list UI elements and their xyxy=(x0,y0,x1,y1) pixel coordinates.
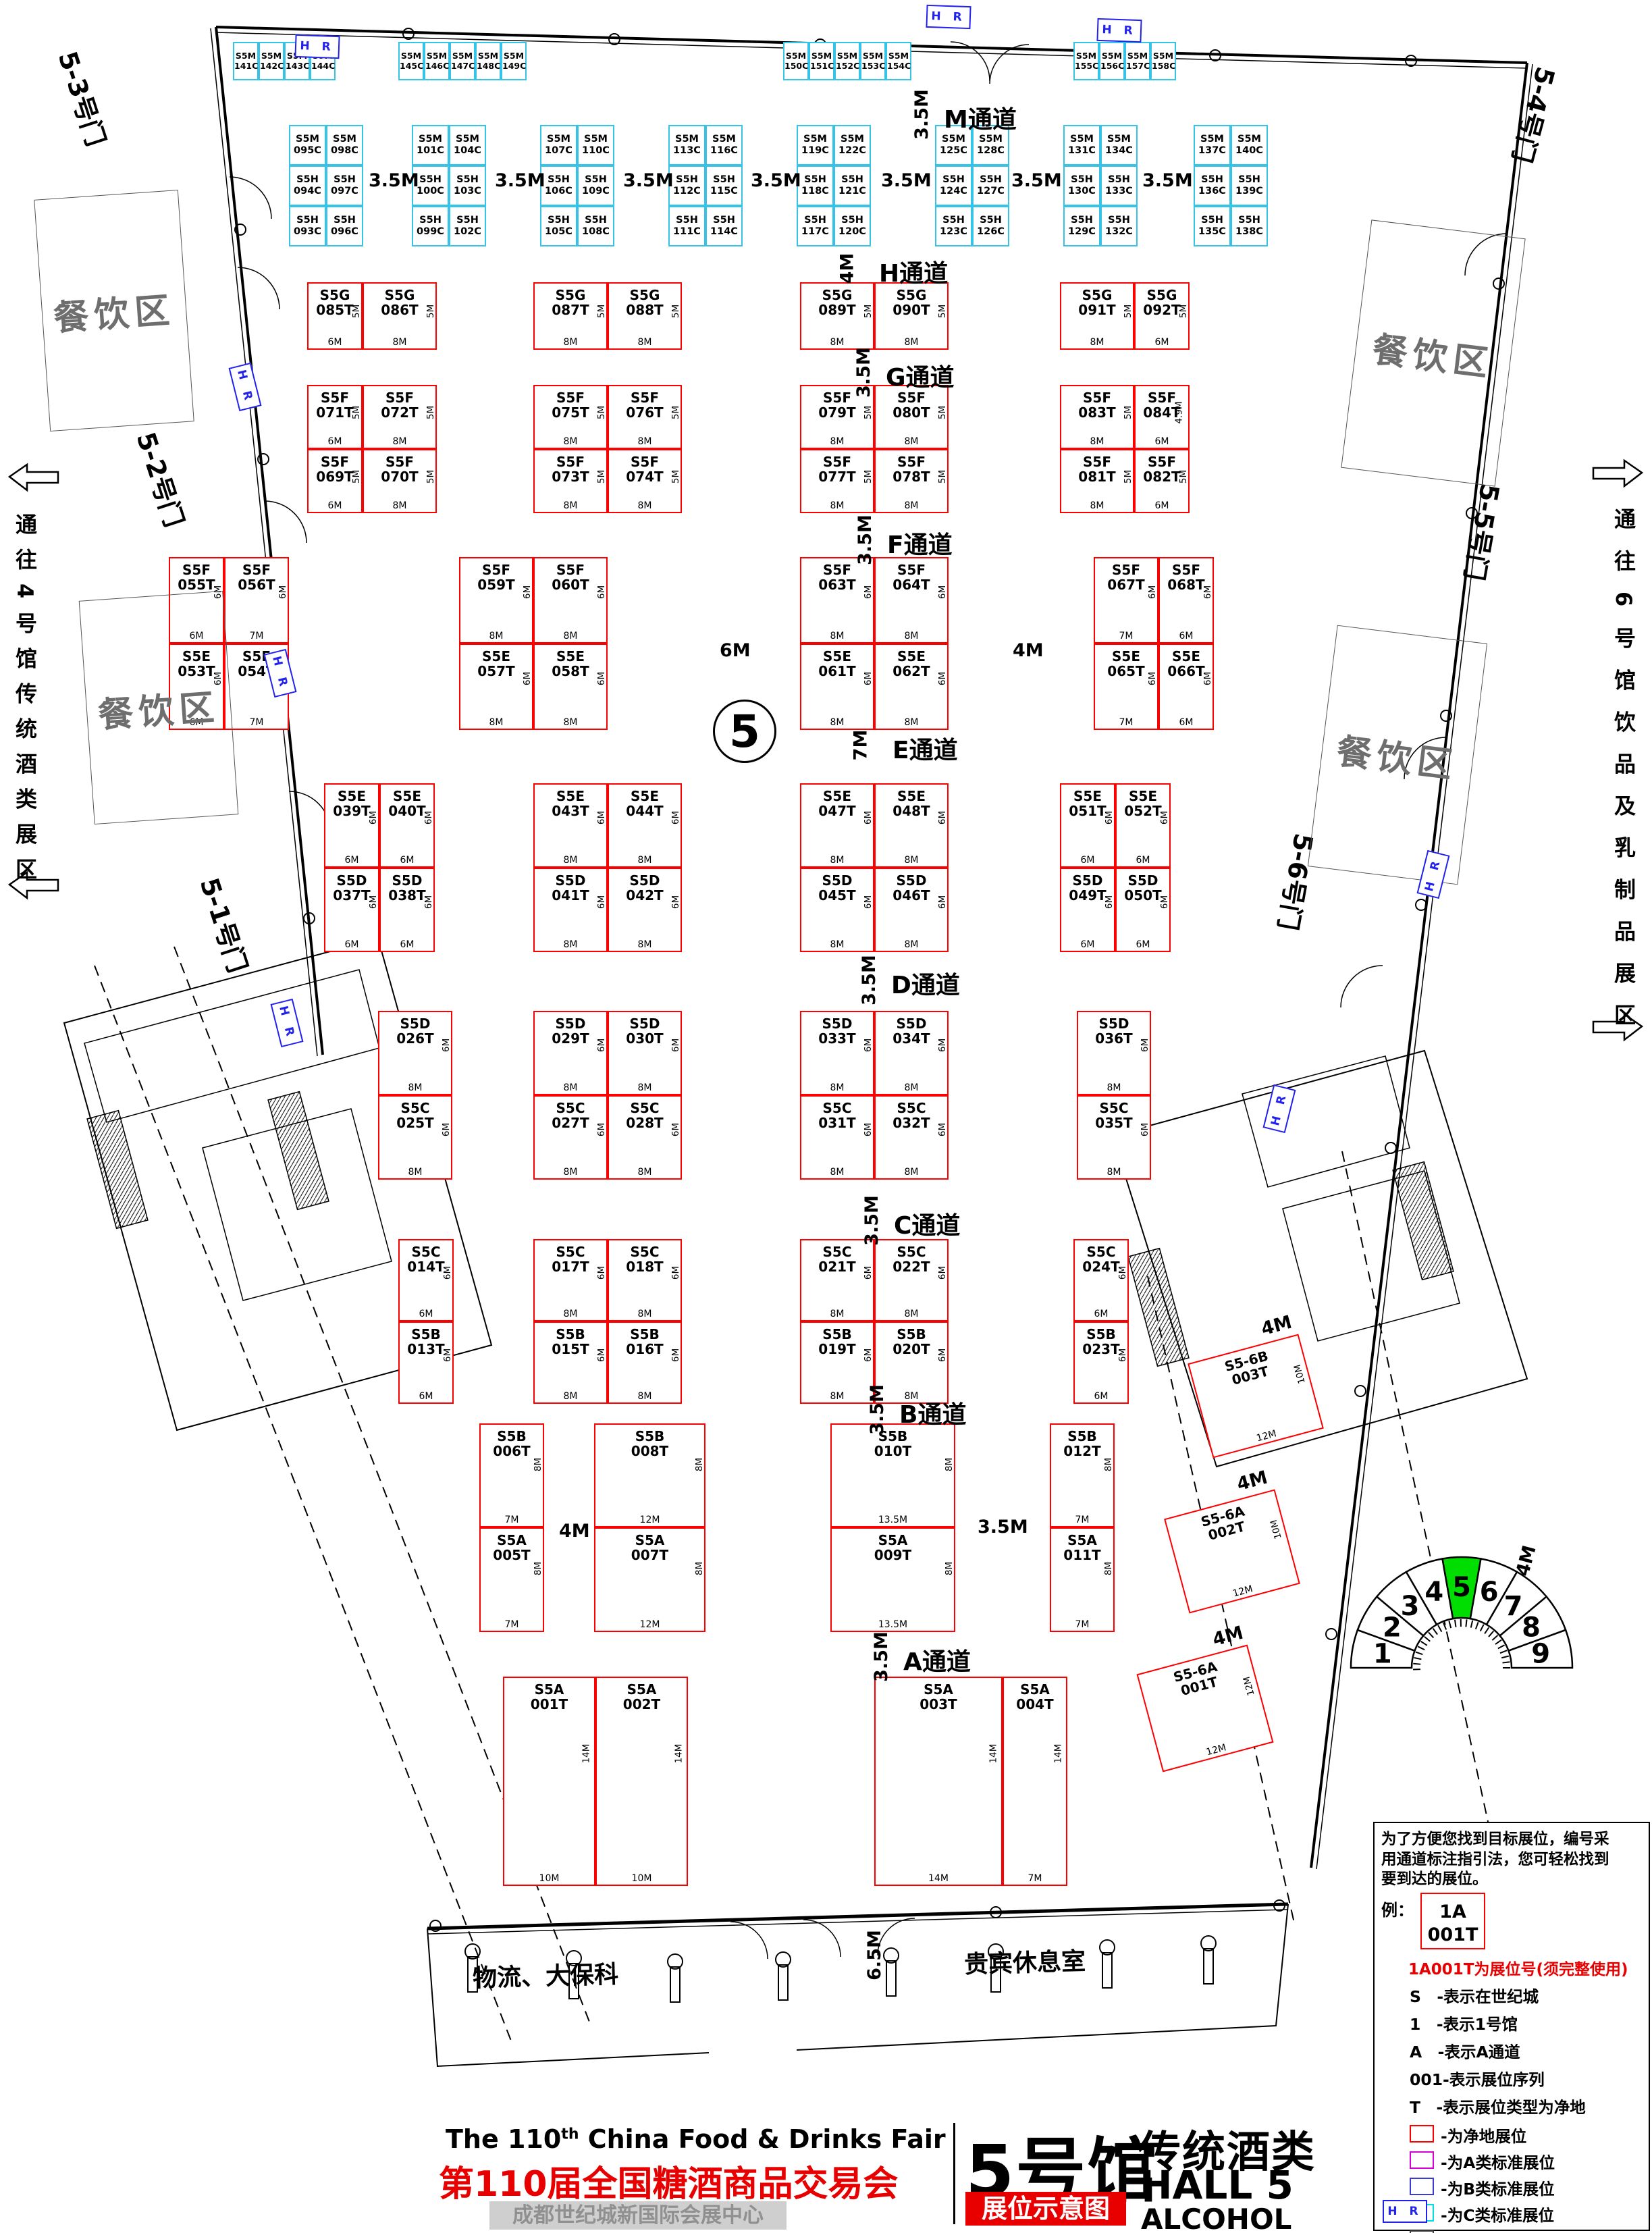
booth-width-label: 7M xyxy=(481,1515,543,1525)
booth-depth-label: 6M xyxy=(596,1123,607,1136)
booth-S5F-067T[interactable]: S5F067T7M6M xyxy=(1094,557,1158,643)
booth-S5E-048T[interactable]: S5E048T8M6M xyxy=(874,783,949,868)
booth-width-label: 8M xyxy=(1061,337,1133,348)
booth-id: S5H129C xyxy=(1065,207,1099,245)
booth-depth-label: 6M xyxy=(596,895,607,909)
booth-S5F-075T[interactable]: S5F075T8M5M xyxy=(533,385,608,449)
legend-code-line: 1 -表示1号馆 xyxy=(1410,2012,1649,2034)
booth-S5D-050T[interactable]: S5D050T6M6M xyxy=(1115,868,1171,952)
booth-S5F-073T[interactable]: S5F073T8M5M xyxy=(533,449,608,513)
booth-S5M-095C[interactable]: S5M095C xyxy=(289,125,326,165)
booth-width-label: 8M xyxy=(609,855,681,866)
booth-depth-label: 5M xyxy=(937,305,948,318)
booth-S5H-124C[interactable]: S5H124C xyxy=(935,165,972,206)
booth-depth-label: 5M xyxy=(937,406,948,419)
booth-S5M-149C[interactable]: S5M149C xyxy=(501,42,527,80)
aisle-label-F通道: F通道 xyxy=(887,525,953,560)
booth-S5M-153C[interactable]: S5M153C xyxy=(860,42,886,80)
booth-width-label: 8M xyxy=(876,717,947,728)
booth-S5M-113C[interactable]: S5M113C xyxy=(668,125,705,165)
booth-S5M-150C[interactable]: S5M150C xyxy=(783,42,809,80)
booth-S5M-137C[interactable]: S5M137C xyxy=(1194,125,1231,165)
booth-S5A-005T[interactable]: S5A005T7M8M xyxy=(479,1527,544,1632)
booth-S5H-133C[interactable]: S5H133C xyxy=(1100,165,1138,206)
booth-S5M-154C[interactable]: S5M154C xyxy=(886,42,911,80)
booth-id: S5H139C xyxy=(1232,167,1267,205)
booth-id: S5M107C xyxy=(541,126,576,164)
booth-depth-label: 6M xyxy=(368,895,379,909)
booth-S5E-065T[interactable]: S5E065T7M6M xyxy=(1094,643,1158,730)
booth-S5M-098C[interactable]: S5M098C xyxy=(326,125,363,165)
booth-S5F-084T[interactable]: S5F084T6M4.9M xyxy=(1134,385,1190,449)
booth-S5E-047T[interactable]: S5E047T8M6M xyxy=(800,783,874,868)
hall-number-circle: 5 xyxy=(713,700,776,763)
booth-depth-label: 8M xyxy=(944,1562,955,1575)
booth-S5D-034T[interactable]: S5D034T8M6M xyxy=(874,1011,949,1095)
booth-S5C-028T[interactable]: S5C028T8M6M xyxy=(608,1095,682,1180)
booth-S5E-039T[interactable]: S5E039T6M6M xyxy=(324,783,379,868)
booth-S5F-068T[interactable]: S5F068T6M6M xyxy=(1158,557,1214,643)
booth-S5H-135C[interactable]: S5H135C xyxy=(1194,206,1231,246)
booth-id: S5D030T xyxy=(609,1017,681,1046)
booth-S5H-118C[interactable]: S5H118C xyxy=(797,165,834,206)
booth-id: S5A003T xyxy=(876,1683,1001,1712)
booth-S5F-063T[interactable]: S5F063T8M6M xyxy=(800,557,874,643)
booth-id: S5G091T xyxy=(1061,288,1133,317)
booth-S5G-089T[interactable]: S5G089T8M5M xyxy=(800,282,874,350)
booth-S5H-120C[interactable]: S5H120C xyxy=(834,206,871,246)
booth-S5M-110C[interactable]: S5M110C xyxy=(577,125,614,165)
booth-width-label: 14M xyxy=(876,1873,1001,1884)
booth-S5H-097C[interactable]: S5H097C xyxy=(326,165,363,206)
booth-S5F-064T[interactable]: S5F064T8M6M xyxy=(874,557,949,643)
booth-id: S5H099C xyxy=(413,207,448,245)
booth-S5F-076T[interactable]: S5F076T8M5M xyxy=(608,385,682,449)
booth-S5M-134C[interactable]: S5M134C xyxy=(1100,125,1138,165)
booth-S5M-116C[interactable]: S5M116C xyxy=(705,125,743,165)
hr-hydrant-icon: H R xyxy=(1096,18,1142,43)
booth-id: S5M158C xyxy=(1152,43,1175,79)
booth-S5E-051T[interactable]: S5E051T6M6M xyxy=(1060,783,1115,868)
booth-S5D-042T[interactable]: S5D042T8M6M xyxy=(608,868,682,952)
booth-S5M-131C[interactable]: S5M131C xyxy=(1063,125,1100,165)
booth-id: S5B012T xyxy=(1051,1429,1113,1459)
booth-width-label: 8M xyxy=(876,855,947,866)
booth-id: S5H109C xyxy=(579,167,613,205)
booth-S5M-147C[interactable]: S5M147C xyxy=(450,42,475,80)
booth-S5H-117C[interactable]: S5H117C xyxy=(797,206,834,246)
booth-S5C-032T[interactable]: S5C032T8M6M xyxy=(874,1095,949,1180)
booth-depth-label: 6M xyxy=(1159,895,1170,909)
booth-S5H-103C[interactable]: S5H103C xyxy=(449,165,486,206)
booth-id: S5M101C xyxy=(413,126,448,164)
legend-sample-booth: 1A001T xyxy=(1420,1893,1485,1949)
booth-id: S5H118C xyxy=(798,167,832,205)
booth-S5H-111C[interactable]: S5H111C xyxy=(668,206,705,246)
booth-width-label: 6M xyxy=(400,1391,452,1402)
booth-S5F-083T[interactable]: S5F083T8M5M xyxy=(1060,385,1134,449)
booth-S5H-123C[interactable]: S5H123C xyxy=(935,206,972,246)
booth-S5G-090T[interactable]: S5G090T8M5M xyxy=(874,282,949,350)
booth-depth-label: 8M xyxy=(533,1458,543,1471)
booth-id: S5C027T xyxy=(535,1101,606,1130)
booth-S5D-038T[interactable]: S5D038T6M6M xyxy=(379,868,435,952)
booth-S5F-078T[interactable]: S5F078T8M5M xyxy=(874,449,949,513)
booth-S5G-085T[interactable]: S5G085T6M5M xyxy=(307,282,363,350)
booth-width-label: 8M xyxy=(535,717,606,728)
booth-width-label: 8M xyxy=(801,631,873,641)
booth-S5A-004T[interactable]: S5A004T7M14M xyxy=(1003,1677,1067,1886)
booth-S5D-049T[interactable]: S5D049T6M6M xyxy=(1060,868,1115,952)
booth-S5D-033T[interactable]: S5D033T8M6M xyxy=(800,1011,874,1095)
booth-id: S5M119C xyxy=(798,126,832,164)
booth-S5H-105C[interactable]: S5H105C xyxy=(540,206,577,246)
booth-width-label: 8M xyxy=(1078,1167,1150,1178)
booth-depth-label: 6M xyxy=(670,811,681,824)
booth-depth-label: 5M xyxy=(670,470,681,483)
booth-S5G-086T[interactable]: S5G086T8M5M xyxy=(363,282,437,350)
booth-width-label: 8M xyxy=(379,1167,451,1178)
booth-S5H-138C[interactable]: S5H138C xyxy=(1231,206,1268,246)
booth-S5H-121C[interactable]: S5H121C xyxy=(834,165,871,206)
booth-id: S5C031T xyxy=(801,1101,873,1130)
booth-width-label: 7M xyxy=(1004,1873,1066,1884)
booth-depth-label: 6M xyxy=(596,585,607,599)
booth-width-label: 7M xyxy=(1051,1619,1113,1630)
booth-id: S5M153C xyxy=(861,43,884,79)
booth-width-label: 7M xyxy=(481,1619,543,1630)
legend-code-line: A -表示A通道 xyxy=(1410,2039,1649,2062)
booth-S5F-070T[interactable]: S5F070T8M5M xyxy=(363,449,437,513)
booth-S5H-096C[interactable]: S5H096C xyxy=(326,206,363,246)
booth-S5A-009T[interactable]: S5A009T13.5M8M xyxy=(830,1527,955,1632)
booth-id: S5H103C xyxy=(450,167,485,205)
booth-S5M-107C[interactable]: S5M107C xyxy=(540,125,577,165)
booth-S5C-024T[interactable]: S5C024T6M6M xyxy=(1073,1239,1129,1321)
booth-S5D-041T[interactable]: S5D041T8M6M xyxy=(533,868,608,952)
booth-S5E-066T[interactable]: S5E066T6M6M xyxy=(1158,643,1214,730)
booth-width-label: 8M xyxy=(609,500,681,511)
booth-S5M-156C[interactable]: S5M156C xyxy=(1099,42,1125,80)
booth-S5M-141C[interactable]: S5M141C xyxy=(233,42,259,80)
booth-S5F-080T[interactable]: S5F080T8M5M xyxy=(874,385,949,449)
booth-S5C-021T[interactable]: S5C021T8M6M xyxy=(800,1239,874,1321)
booth-id: S5M141C xyxy=(234,43,257,79)
booth-S5C-018T[interactable]: S5C018T8M6M xyxy=(608,1239,682,1321)
booth-width-label: 8M xyxy=(535,500,606,511)
booth-S5H-112C[interactable]: S5H112C xyxy=(668,165,705,206)
booth-id: S5F072T xyxy=(364,391,435,420)
booth-width-label: 10M xyxy=(597,1873,687,1884)
booth-depth-label: 6M xyxy=(1104,895,1115,909)
booth-S5M-142C[interactable]: S5M142C xyxy=(259,42,284,80)
booth-S5G-088T[interactable]: S5G088T8M5M xyxy=(608,282,682,350)
booth-S5H-126C[interactable]: S5H126C xyxy=(972,206,1009,246)
booth-id: S5D042T xyxy=(609,874,681,903)
gap-dimension-label: 4M xyxy=(559,1521,590,1542)
booth-S5E-052T[interactable]: S5E052T6M6M xyxy=(1115,783,1171,868)
booth-S5M-155C[interactable]: S5M155C xyxy=(1073,42,1099,80)
booth-id: S5A007T xyxy=(595,1533,704,1562)
legend-type-label: -为C类标准展位 xyxy=(1441,2203,1554,2226)
title-block: The 110th China Food & Drinks Fair 第110届… xyxy=(425,2119,1323,2230)
booth-depth-label: 14M xyxy=(988,1744,999,1764)
booth-S5H-109C[interactable]: S5H109C xyxy=(577,165,614,206)
booth-S5M-148C[interactable]: S5M148C xyxy=(475,42,501,80)
booth-S5F-056T[interactable]: S5F056T7M6M xyxy=(224,557,289,643)
booth-id: S5M155C xyxy=(1075,43,1098,79)
booth-width-label: 8M xyxy=(535,1391,606,1402)
booth-depth-label: 6M xyxy=(937,1123,948,1136)
booth-S5H-106C[interactable]: S5H106C xyxy=(540,165,577,206)
booth-S5B-019T[interactable]: S5B019T8M6M xyxy=(800,1321,874,1404)
booth-depth-label: 14M xyxy=(674,1744,685,1764)
booth-id: S5H136C xyxy=(1195,167,1229,205)
booth-id: S5H093C xyxy=(290,207,325,245)
booth-depth-label: 6M xyxy=(441,1039,452,1052)
booth-depth-label: 6M xyxy=(863,811,874,824)
booth-S5A-007T[interactable]: S5A007T12M8M xyxy=(594,1527,705,1632)
booth-S5A-011T[interactable]: S5A011T7M8M xyxy=(1050,1527,1115,1632)
booth-id: S5E057T xyxy=(460,650,532,679)
booth-id: S5E044T xyxy=(609,789,681,818)
booth-S5B-015T[interactable]: S5B015T8M6M xyxy=(533,1321,608,1404)
booth-id: S5B006T xyxy=(481,1429,543,1459)
booth-depth-label: 6M xyxy=(937,672,948,685)
booth-depth-label: 6M xyxy=(937,895,948,909)
booth-S5M-122C[interactable]: S5M122C xyxy=(834,125,871,165)
booth-depth-label: 6M xyxy=(863,1039,874,1052)
booth-S5C-031T[interactable]: S5C031T8M6M xyxy=(800,1095,874,1180)
booth-S5C-035T[interactable]: S5C035T8M6M xyxy=(1077,1095,1151,1180)
locator-hall-number: 9 xyxy=(1531,1638,1550,1669)
booth-width-label: 6M xyxy=(309,337,361,348)
booth-S5E-061T[interactable]: S5E061T8M6M xyxy=(800,643,874,730)
booth-width-label: 6M xyxy=(1160,717,1213,728)
booth-S5B-010T[interactable]: S5B010T13.5M8M xyxy=(830,1423,955,1527)
booth-depth-label: 5M xyxy=(1123,305,1134,318)
booth-depth-label: 14M xyxy=(1053,1744,1064,1764)
booth-depth-label: 5M xyxy=(863,406,874,419)
booth-depth-label: 6M xyxy=(670,1039,681,1052)
booth-S5E-058T[interactable]: S5E058T8M6M xyxy=(533,643,608,730)
booth-S5D-036T[interactable]: S5D036T8M6M xyxy=(1077,1011,1151,1095)
locator-hall-number: 3 xyxy=(1401,1591,1420,1622)
aisle-width-label: 3.5M xyxy=(859,955,880,1005)
booth-S5C-014T[interactable]: S5C014T6M6M xyxy=(398,1239,454,1321)
booth-depth-label: 6M xyxy=(441,1123,452,1136)
booth-id: S5C021T xyxy=(801,1245,873,1274)
service-room-label: 物流、大保科 xyxy=(472,1955,618,1994)
booth-width-label: 8M xyxy=(609,1309,681,1319)
booth-width-label: 8M xyxy=(1078,1082,1150,1093)
booth-S5M-119C[interactable]: S5M119C xyxy=(797,125,834,165)
booth-depth-label: 5M xyxy=(351,406,362,419)
booth-width-label: 8M xyxy=(609,1391,681,1402)
booth-S5G-087T[interactable]: S5G087T8M5M xyxy=(533,282,608,350)
booth-S5B-008T[interactable]: S5B008T12M8M xyxy=(594,1423,705,1527)
booth-S5E-044T[interactable]: S5E044T8M6M xyxy=(608,783,682,868)
booth-S5M-152C[interactable]: S5M152C xyxy=(834,42,860,80)
booth-S5H-094C[interactable]: S5H094C xyxy=(289,165,326,206)
booth-S5B-013T[interactable]: S5B013T6M6M xyxy=(398,1321,454,1404)
booth-S5H-114C[interactable]: S5H114C xyxy=(705,206,743,246)
booth-S5M-145C[interactable]: S5M145C xyxy=(398,42,424,80)
booth-id: S5H105C xyxy=(541,207,576,245)
booth-S5M-151C[interactable]: S5M151C xyxy=(809,42,834,80)
booth-S5G-092T[interactable]: S5G092T6M5M xyxy=(1134,282,1190,350)
booth-id: S5H111C xyxy=(670,207,704,245)
booth-S5H-108C[interactable]: S5H108C xyxy=(577,206,614,246)
booth-id: S5F076T xyxy=(609,391,681,420)
booth-width-label: 7M xyxy=(225,631,288,641)
gap-dimension-label: 6M xyxy=(720,640,751,661)
booth-S5H-093C[interactable]: S5H093C xyxy=(289,206,326,246)
booth-S5A-003T[interactable]: S5A003T14M14M xyxy=(874,1677,1003,1886)
booth-width-label: 13.5M xyxy=(832,1619,954,1630)
booth-width-label: 6M xyxy=(400,1309,452,1319)
hr-hydrant-icon: H R xyxy=(294,34,340,59)
aisle-width-label: 3.5M xyxy=(871,1631,892,1682)
booth-S5D-030T[interactable]: S5D030T8M6M xyxy=(608,1011,682,1095)
aisle-width-label: 4M xyxy=(836,253,857,284)
locator-hall-number: 5 xyxy=(1452,1572,1471,1603)
booth-width-label: 8M xyxy=(801,855,873,866)
booth-depth-label: 6M xyxy=(1202,672,1213,685)
booth-width-label: 8M xyxy=(801,436,873,447)
booth-depth-label: 6M xyxy=(1117,1348,1128,1362)
booth-id: S5M131C xyxy=(1065,126,1099,164)
booth-S5B-023T[interactable]: S5B023T6M6M xyxy=(1073,1321,1129,1404)
booth-S5F-060T[interactable]: S5F060T8M6M xyxy=(533,557,608,643)
booth-depth-label: 5M xyxy=(596,305,607,318)
legend-intro: 为了方便您找到目标展位，编号采 用通道标注指引法，您可轻松找到 要到达的展位。 xyxy=(1381,1830,1643,1890)
legend-type-label: -为净地展位 xyxy=(1441,2124,1526,2147)
booth-S5H-102C[interactable]: S5H102C xyxy=(449,206,486,246)
booth-S5M-157C[interactable]: S5M157C xyxy=(1125,42,1150,80)
booth-S5H-130C[interactable]: S5H130C xyxy=(1063,165,1100,206)
booth-depth-label: 6M xyxy=(522,672,533,685)
booth-id: S5M154C xyxy=(887,43,910,79)
booth-id: S5F060T xyxy=(535,563,606,592)
locator-hall-number: 6 xyxy=(1480,1577,1499,1608)
booth-S5D-026T[interactable]: S5D026T8M6M xyxy=(378,1011,452,1095)
booth-S5D-029T[interactable]: S5D029T8M6M xyxy=(533,1011,608,1095)
aisle-width-label: 3.5M xyxy=(861,1195,882,1246)
booth-S5H-127C[interactable]: S5H127C xyxy=(972,165,1009,206)
booth-width-label: 8M xyxy=(876,1167,947,1178)
booth-S5A-002T[interactable]: S5A002T10M14M xyxy=(595,1677,688,1886)
booth-S5H-099C[interactable]: S5H099C xyxy=(412,206,449,246)
booth-S5D-037T[interactable]: S5D037T6M6M xyxy=(324,868,379,952)
booth-S5B-006T[interactable]: S5B006T7M8M xyxy=(479,1423,544,1527)
plan-tag: 展位示意图 xyxy=(965,2192,1126,2226)
booth-S5C-017T[interactable]: S5C017T8M6M xyxy=(533,1239,608,1321)
booth-depth-label: 5M xyxy=(425,305,436,318)
locator-hall-number: 4 xyxy=(1424,1577,1443,1608)
booth-id: S5M122C xyxy=(835,126,870,164)
booth-id: S5A001T xyxy=(504,1683,594,1712)
booth-depth-label: 6M xyxy=(1117,1266,1128,1280)
booth-S5E-043T[interactable]: S5E043T8M6M xyxy=(533,783,608,868)
booth-S5F-069T[interactable]: S5F069T6M5M xyxy=(307,449,363,513)
booth-id: S5M156C xyxy=(1100,43,1123,79)
booth-width-label: 8M xyxy=(535,1082,606,1093)
booth-depth-label: 6M xyxy=(596,811,607,824)
booth-S5H-115C[interactable]: S5H115C xyxy=(705,165,743,206)
booth-width-label: 7M xyxy=(225,717,288,728)
booth-id: S5B008T xyxy=(595,1429,704,1459)
booth-S5D-045T[interactable]: S5D045T8M6M xyxy=(800,868,874,952)
booth-id: S5M147C xyxy=(451,43,474,79)
booth-S5H-139C[interactable]: S5H139C xyxy=(1231,165,1268,206)
booth-width-label: 6M xyxy=(1136,436,1188,447)
booth-depth-label: 6M xyxy=(937,585,948,599)
locator-hall-number: 7 xyxy=(1504,1591,1523,1622)
booth-S5F-082T[interactable]: S5F082T6M5M xyxy=(1134,449,1190,513)
booth-S5A-001T[interactable]: S5A001T10M14M xyxy=(503,1677,595,1886)
legend-type-label: -为B类标准展位 xyxy=(1441,2176,1555,2199)
booth-S5D-046T[interactable]: S5D046T8M6M xyxy=(874,868,949,952)
booth-S5F-077T[interactable]: S5F077T8M5M xyxy=(800,449,874,513)
booth-width-label: 8M xyxy=(535,1167,606,1178)
booth-S5F-059T[interactable]: S5F059T8M6M xyxy=(459,557,533,643)
booth-S5M-140C[interactable]: S5M140C xyxy=(1231,125,1268,165)
booth-S5M-101C[interactable]: S5M101C xyxy=(412,125,449,165)
booth-width-label: 8M xyxy=(460,717,532,728)
booth-S5F-074T[interactable]: S5F074T8M5M xyxy=(608,449,682,513)
booth-S5H-129C[interactable]: S5H129C xyxy=(1063,206,1100,246)
booth-S5E-057T[interactable]: S5E057T8M6M xyxy=(459,643,533,730)
booth-S5B-016T[interactable]: S5B016T8M6M xyxy=(608,1321,682,1404)
booth-S5C-022T[interactable]: S5C022T8M6M xyxy=(874,1239,949,1321)
booth-S5H-132C[interactable]: S5H132C xyxy=(1100,206,1138,246)
legend-type-row: -为D类标准展位 xyxy=(1410,2229,1649,2233)
booth-S5E-062T[interactable]: S5E062T8M6M xyxy=(874,643,949,730)
booth-S5E-040T[interactable]: S5E040T6M6M xyxy=(379,783,435,868)
category-en: ALCOHOL xyxy=(1141,2203,1291,2233)
booth-S5B-012T[interactable]: S5B012T7M8M xyxy=(1050,1423,1115,1527)
booth-id: S5F077T xyxy=(801,455,873,484)
legend-color-swatch xyxy=(1410,2125,1434,2143)
booth-width-label: 6M xyxy=(309,500,361,511)
booth-S5M-146C[interactable]: S5M146C xyxy=(424,42,450,80)
booth-S5H-136C[interactable]: S5H136C xyxy=(1194,165,1231,206)
booth-S5F-072T[interactable]: S5F072T8M5M xyxy=(363,385,437,449)
booth-S5M-104C[interactable]: S5M104C xyxy=(449,125,486,165)
booth-id: S5M140C xyxy=(1232,126,1267,164)
locator-hall-number: 2 xyxy=(1383,1612,1402,1644)
booth-depth-label: 5M xyxy=(1178,305,1189,318)
booth-depth-label: 5M xyxy=(1123,470,1134,483)
booth-id: S5C022T xyxy=(876,1245,947,1274)
booth-depth-label: 6M xyxy=(277,585,288,599)
booth-id: S5D026T xyxy=(379,1017,451,1046)
booth-depth-label: 5M xyxy=(596,470,607,483)
booth-width-label: 8M xyxy=(609,1167,681,1178)
booth-S5F-071T[interactable]: S5F071T6M5M xyxy=(307,385,363,449)
booth-S5F-081T[interactable]: S5F081T8M5M xyxy=(1060,449,1134,513)
booth-id: S5H108C xyxy=(579,207,613,245)
booth-S5G-091T[interactable]: S5G091T8M5M xyxy=(1060,282,1134,350)
booth-id: S5H112C xyxy=(670,167,704,205)
booth-S5M-158C[interactable]: S5M158C xyxy=(1150,42,1176,80)
booth-depth-label: 6M xyxy=(1140,1123,1150,1136)
booth-S5C-027T[interactable]: S5C027T8M6M xyxy=(533,1095,608,1180)
booth-S5C-025T[interactable]: S5C025T8M6M xyxy=(378,1095,452,1180)
booth-id: S5H096C xyxy=(327,207,362,245)
booth-id: S5G087T xyxy=(535,288,606,317)
